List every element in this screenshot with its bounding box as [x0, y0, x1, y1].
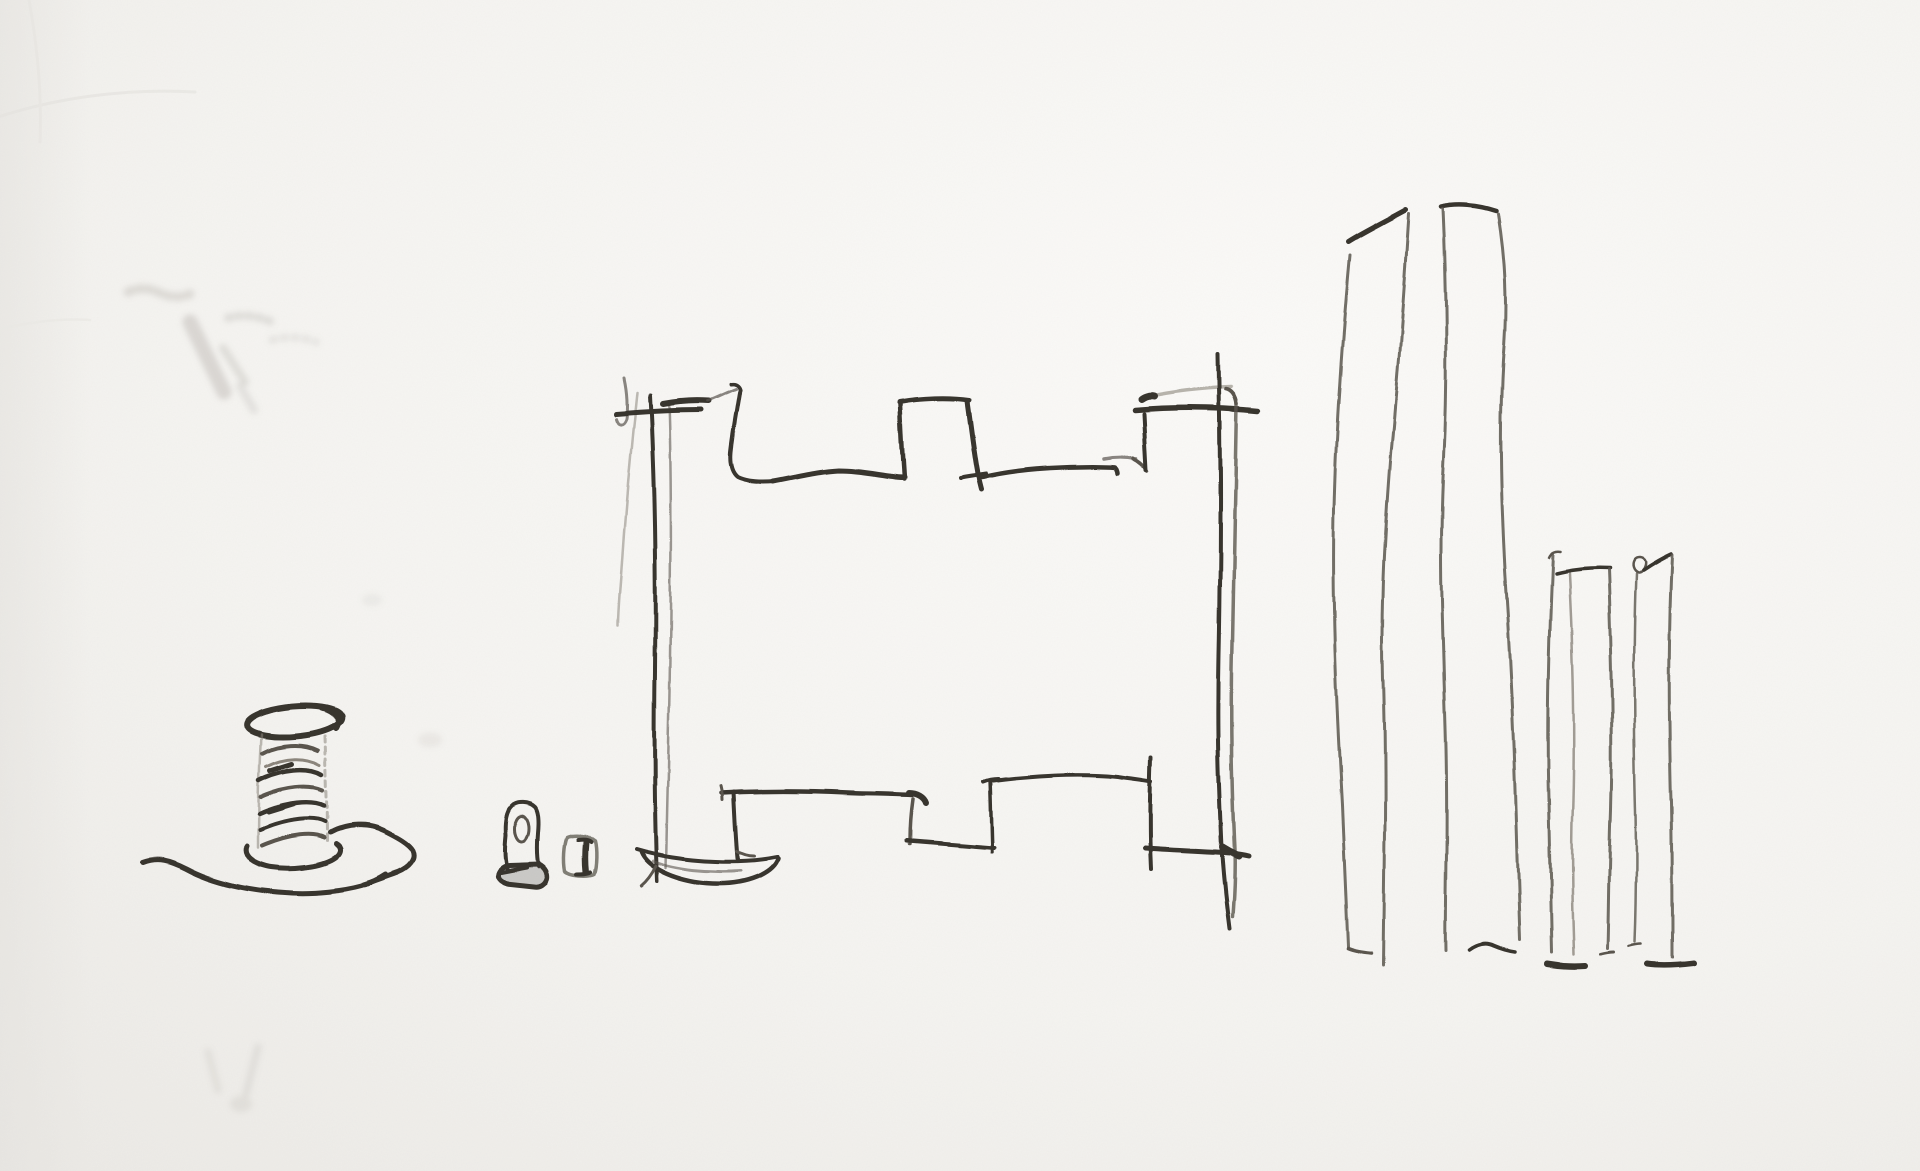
parapet-bar-dot — [1141, 396, 1154, 399]
small-tower1-foot — [1548, 964, 1586, 966]
small-tower2-foot — [1647, 963, 1694, 965]
sketch-canvas: Hand-drawn pencil sketch on white textur… — [0, 0, 1920, 1171]
paper-sheet: Hand-drawn pencil sketch on white textur… — [0, 0, 1920, 1171]
base-step-vertical — [1150, 758, 1151, 869]
step-bar — [1104, 458, 1136, 460]
box-inner-mark — [585, 842, 586, 872]
parapet-bar — [663, 401, 709, 404]
base-step-vertical — [990, 780, 992, 852]
paper-grain — [0, 0, 1920, 1171]
box-inner-mark — [577, 872, 590, 874]
parapet-bar-dark — [1134, 408, 1258, 411]
